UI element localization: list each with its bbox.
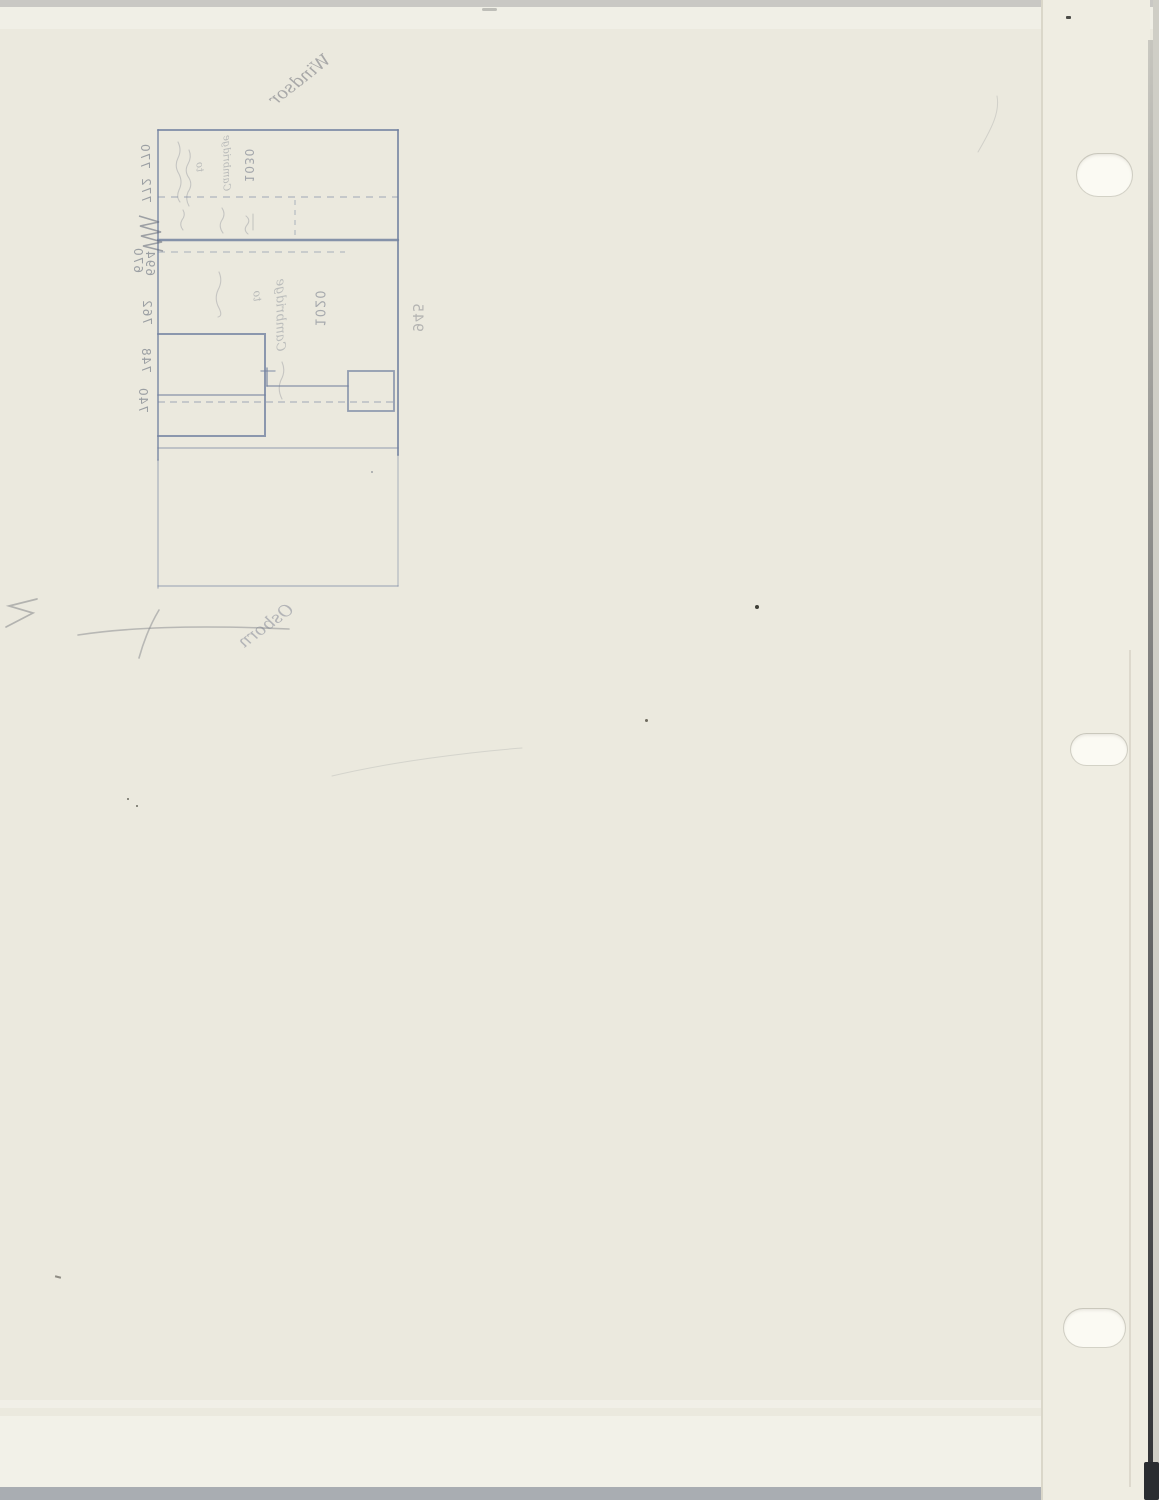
block-label-cambridge-mid: Cambridge [273, 278, 288, 351]
block-label-cambridge-upper: Cambridge [221, 135, 232, 191]
lot-number: 770 [138, 143, 152, 169]
scribbled-out-number [139, 216, 163, 251]
lot-number: 762 [140, 299, 154, 325]
sketch-plan-walls [158, 130, 398, 588]
address-1030: 1030 [242, 148, 256, 183]
lot-number: 748 [139, 347, 153, 373]
lot-number: 740 [136, 387, 150, 413]
lot-number: 772 [139, 177, 153, 203]
address-945: 945 [409, 302, 425, 332]
pencil-margin-marks [6, 96, 998, 776]
lot-number: 694 [143, 250, 157, 276]
address-1020: 1020 [312, 289, 327, 326]
word-to-mid: to [251, 290, 264, 301]
sketch-linework [0, 0, 1159, 1500]
word-to-upper: to [194, 162, 205, 172]
scanned-page: Windsor Osborn Cambridge to 1030 Cambrid… [0, 0, 1159, 1500]
